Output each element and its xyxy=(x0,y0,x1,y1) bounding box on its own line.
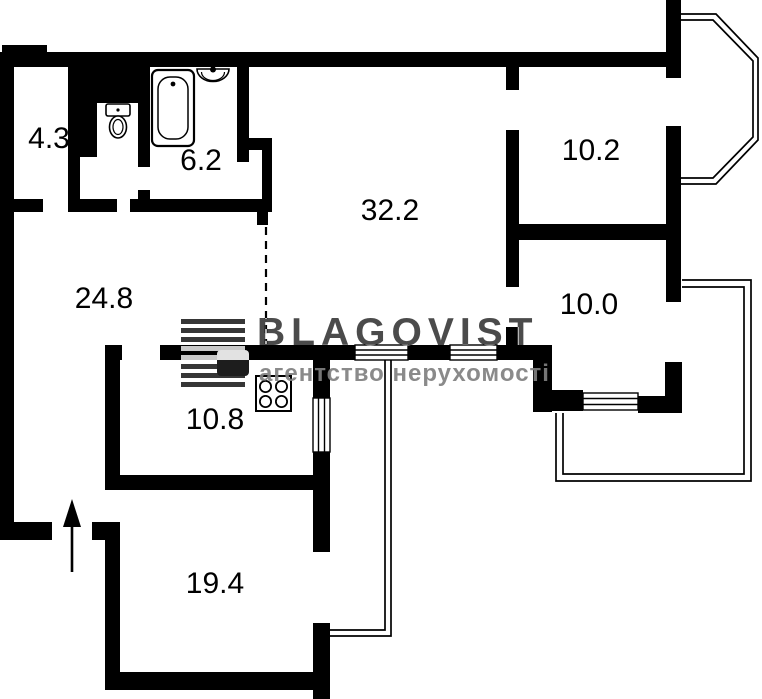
wall xyxy=(257,210,268,225)
wall xyxy=(138,67,150,167)
room-label-room-bottom: 19.4 xyxy=(177,568,253,600)
toilet-icon xyxy=(106,104,130,138)
wall xyxy=(408,345,450,360)
wall xyxy=(313,452,330,552)
wall xyxy=(130,199,262,212)
wall xyxy=(533,390,583,411)
room-label-bathroom: 6.2 xyxy=(163,145,239,177)
bay-window xyxy=(681,14,758,184)
wall-entrance-left xyxy=(0,522,52,540)
wall xyxy=(105,475,330,490)
glazing-outlines xyxy=(330,14,758,636)
wall-entrance-right xyxy=(92,522,120,540)
room-label-living-room: 32.2 xyxy=(352,195,428,227)
window-icon xyxy=(450,345,497,360)
entrance-arrow-icon xyxy=(63,499,81,572)
wall xyxy=(262,138,272,212)
room-label-hallway: 24.8 xyxy=(66,283,142,315)
wall xyxy=(665,362,682,413)
window-icon xyxy=(313,398,330,452)
wall xyxy=(77,199,117,212)
window-icon xyxy=(583,393,638,410)
window-icon xyxy=(355,345,408,360)
bathtub-icon xyxy=(152,70,194,146)
wall-right-upper xyxy=(666,0,681,78)
wall xyxy=(105,345,120,490)
room-label-kitchen: 10.8 xyxy=(177,404,253,436)
wall-right xyxy=(666,126,681,302)
wall xyxy=(105,672,330,690)
floorplan-drawing xyxy=(0,0,762,699)
wall xyxy=(506,224,681,240)
wall xyxy=(313,358,330,398)
room-label-room-right: 10.0 xyxy=(551,289,627,321)
wall xyxy=(10,199,43,212)
wall xyxy=(160,345,355,360)
wall xyxy=(105,540,120,690)
balcony-left xyxy=(330,360,391,636)
room-label-bedroom-upper-right: 10.2 xyxy=(553,135,629,167)
floorplan-page: BLAGOVIST агентство нерухомості 4.3 6.2 … xyxy=(0,0,762,699)
sink-icon xyxy=(197,65,229,82)
windows xyxy=(313,345,638,452)
walls xyxy=(0,0,682,699)
wall xyxy=(2,45,47,53)
wall xyxy=(506,67,519,90)
room-label-wc: 4.3 xyxy=(11,123,87,155)
stove-icon xyxy=(256,376,291,411)
wall xyxy=(506,130,519,240)
wall xyxy=(506,240,519,287)
